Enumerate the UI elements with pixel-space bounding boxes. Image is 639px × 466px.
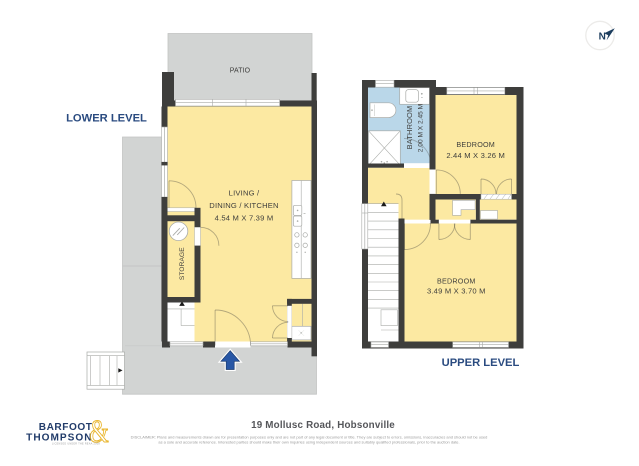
svg-text:LOWER LEVEL: LOWER LEVEL [66, 112, 147, 124]
svg-text:2.44 M X 3.26 M: 2.44 M X 3.26 M [446, 151, 505, 160]
svg-text:BEDROOM: BEDROOM [437, 276, 476, 285]
svg-text:BATHROOM: BATHROOM [405, 106, 414, 150]
svg-text:STORAGE: STORAGE [179, 247, 186, 280]
svg-text:LIVING /: LIVING / [229, 189, 260, 198]
svg-text:PATIO: PATIO [230, 68, 251, 75]
svg-text:19 Mollusc Road, Hobsonville: 19 Mollusc Road, Hobsonville [251, 420, 395, 431]
svg-text:3.49 M X 3.70 M: 3.49 M X 3.70 M [427, 287, 486, 296]
svg-text:as a sole and accurate referen: as a sole and accurate reference. Intere… [158, 440, 459, 445]
svg-text:DINING / KITCHEN: DINING / KITCHEN [209, 201, 278, 210]
svg-text:4.54 M X 7.39 M: 4.54 M X 7.39 M [215, 213, 274, 222]
svg-text:LICENSED UNDER THE REAA 2008: LICENSED UNDER THE REAA 2008 [52, 443, 100, 446]
svg-text:2.00 M X 2.45 M: 2.00 M X 2.45 M [417, 104, 424, 152]
svg-text:UPPER LEVEL: UPPER LEVEL [442, 357, 520, 369]
svg-text:BEDROOM: BEDROOM [456, 140, 495, 149]
